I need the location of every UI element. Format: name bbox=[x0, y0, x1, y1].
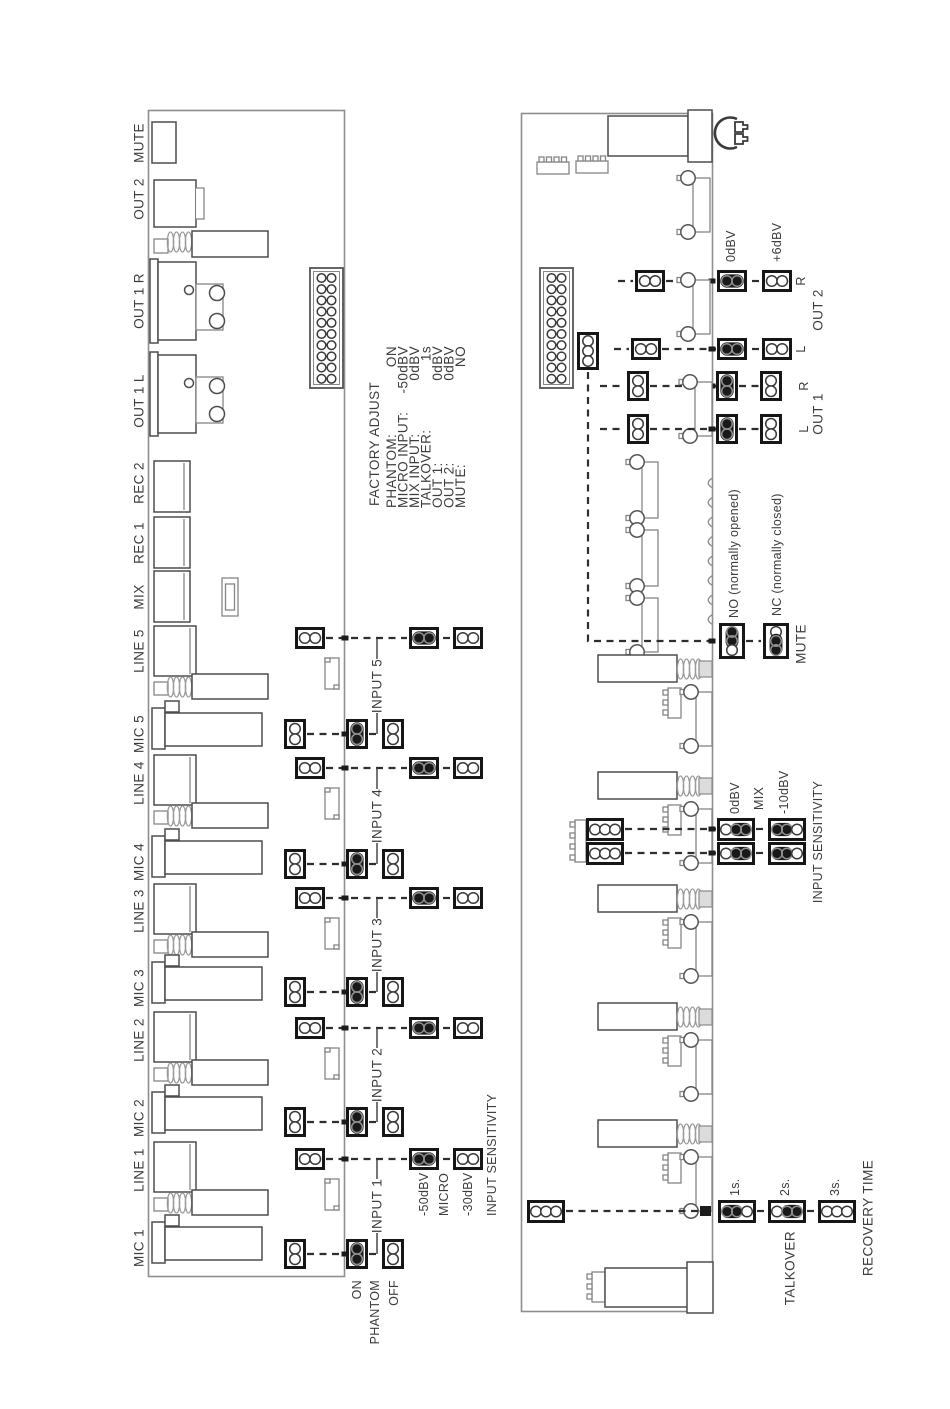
mute-no-jumper bbox=[721, 625, 744, 658]
talkover-2s-jumper bbox=[770, 1202, 805, 1222]
line3-onboard-jumper bbox=[297, 889, 324, 908]
factory-row-name: MUTE: bbox=[453, 464, 468, 508]
out1-label: OUT 1 bbox=[811, 393, 826, 435]
jumper-settings-diagram: MUTE OUT 2 OUT 1 R OUT 1 L REC 2 REC 1 M… bbox=[0, 0, 950, 1409]
mic2-phantom-off-jumper bbox=[384, 1109, 403, 1136]
line3-30dbv-jumper bbox=[455, 889, 482, 908]
mix-label: MIX bbox=[752, 787, 766, 810]
input-label: INPUT 4 bbox=[370, 789, 385, 843]
line5-30dbv-jumper bbox=[455, 629, 482, 648]
rec2-jack bbox=[154, 461, 190, 512]
mix-trimmer-part bbox=[222, 578, 238, 616]
connector-label: MUTE bbox=[132, 123, 147, 163]
talkover-label: TALKOVER bbox=[783, 1231, 798, 1305]
mix-10dbv-label: -10dBV bbox=[777, 770, 791, 814]
connector-label: MIC 2 bbox=[132, 1099, 147, 1137]
line2-onboard-jumper bbox=[297, 1019, 324, 1038]
out1-l-label: L bbox=[797, 425, 811, 432]
mix-0dbv-label: 0dBV bbox=[728, 782, 742, 814]
mic1-phantom-off-jumper bbox=[384, 1241, 403, 1268]
connector-label: LINE 5 bbox=[132, 629, 147, 673]
factory-adjust-title: FACTORY ADJUST bbox=[367, 382, 382, 506]
out1r-6dbv-jumper bbox=[762, 373, 781, 400]
headphones-icon bbox=[715, 118, 748, 149]
mic3-phantom-off-jumper bbox=[384, 979, 403, 1006]
connector-label: MIX bbox=[132, 584, 147, 609]
micro-label: MICRO bbox=[437, 1173, 451, 1216]
out2-label: OUT 2 bbox=[811, 289, 826, 331]
input-label: INPUT 3 bbox=[370, 918, 385, 972]
mix-r-10dbv-jumper bbox=[770, 844, 805, 864]
headphone-jack bbox=[608, 110, 712, 162]
out1r-0dbv-jumper bbox=[718, 373, 737, 400]
connector-label: MIC 3 bbox=[132, 969, 147, 1007]
mix-sensitivity-title: INPUT SENSITIVITY bbox=[811, 781, 825, 904]
factory-row-value: NO bbox=[453, 346, 468, 367]
line2-jack bbox=[154, 1012, 196, 1062]
micro-30dbv-label: -30dBV bbox=[461, 1172, 475, 1216]
mic4-phantom-on-jumper bbox=[348, 851, 367, 878]
connector-label: REC 1 bbox=[132, 522, 147, 564]
line4-jack bbox=[154, 755, 196, 805]
mute-connector bbox=[152, 122, 176, 163]
mic5-phantom-off-jumper bbox=[384, 721, 403, 748]
mix-l-10dbv-jumper bbox=[770, 820, 805, 840]
talkover-2s-label: 2s. bbox=[778, 1178, 792, 1196]
line4-50dbv-jumper bbox=[411, 759, 438, 778]
mute-nc-jumper bbox=[765, 625, 788, 658]
mix-r-0dbv-jumper bbox=[719, 844, 754, 864]
connector-label: MIC 4 bbox=[132, 843, 147, 881]
mute-no-label: NO (normally opened) bbox=[727, 489, 741, 618]
mic4-onboard-jumper bbox=[286, 851, 305, 878]
line4-onboard-jumper bbox=[297, 759, 324, 778]
main-board: MUTE OUT 2 OUT 1 R OUT 1 L REC 2 REC 1 M… bbox=[132, 111, 500, 1345]
mix-l-0dbv-jumper bbox=[719, 820, 754, 840]
out2l-onboard-jumper bbox=[633, 340, 660, 359]
out-0dbv-label: 0dBV bbox=[724, 230, 738, 262]
rec1-jack bbox=[154, 517, 190, 568]
line4-30dbv-jumper bbox=[455, 759, 482, 778]
connector-label: REC 2 bbox=[132, 462, 147, 504]
phantom-off-label: OFF bbox=[387, 1280, 401, 1306]
connector-label: MIC 5 bbox=[132, 715, 147, 753]
talkover-3s-label: 3s. bbox=[828, 1178, 842, 1196]
line5-50dbv-jumper bbox=[411, 629, 438, 648]
connector-label: LINE 4 bbox=[132, 761, 147, 805]
out1l-6dbv-jumper bbox=[762, 416, 781, 443]
talkover-onboard-jumper bbox=[529, 1202, 564, 1222]
mic4-phantom-off-jumper bbox=[384, 851, 403, 878]
out2-l-label: L bbox=[794, 345, 808, 352]
input-label: INPUT 2 bbox=[370, 1048, 385, 1102]
input-label: INPUT 5 bbox=[370, 659, 385, 713]
out1-r-label: R bbox=[797, 381, 811, 390]
jumper-settings-page: MUTE OUT 2 OUT 1 R OUT 1 L REC 2 REC 1 M… bbox=[0, 0, 950, 1409]
mic3-onboard-jumper bbox=[286, 979, 305, 1006]
line5-jack bbox=[154, 626, 196, 676]
mix-l-onboard-jumper bbox=[588, 820, 623, 840]
connector-label: OUT 1 L bbox=[132, 374, 147, 428]
mic1-phantom-on-jumper bbox=[348, 1241, 367, 1268]
phantom-on-label: ON bbox=[350, 1280, 364, 1299]
mic5-phantom-on-jumper bbox=[348, 721, 367, 748]
out2-r-label: R bbox=[794, 276, 808, 285]
micro-50dbv-label: -50dBV bbox=[417, 1172, 431, 1216]
line1-jack bbox=[154, 1142, 196, 1192]
out1l-0dbv-jumper bbox=[718, 416, 737, 443]
out2r-6dbv-jumper bbox=[764, 272, 791, 291]
input-label: INPUT 1 bbox=[370, 1179, 385, 1233]
out-6dbv-label: +6dBV bbox=[770, 222, 784, 262]
mic2-onboard-jumper bbox=[286, 1109, 305, 1136]
out1l-onboard-jumper bbox=[629, 416, 648, 443]
out2l-0dbv-jumper bbox=[719, 340, 746, 359]
line2-50dbv-jumper bbox=[411, 1019, 438, 1038]
line3-50dbv-jumper bbox=[411, 889, 438, 908]
second-board: 0dBV +6dBV R L OUT 2 R L OUT 1 NO (norma… bbox=[522, 110, 876, 1313]
ribbon-connector bbox=[310, 268, 343, 388]
mute-onboard-connector bbox=[579, 334, 598, 369]
talkover-1s-jumper bbox=[720, 1202, 755, 1222]
mute-label: MUTE bbox=[794, 624, 809, 664]
out1r-onboard-jumper bbox=[629, 373, 648, 400]
line1-onboard-jumper bbox=[297, 1150, 324, 1169]
mic2-phantom-on-jumper bbox=[348, 1109, 367, 1136]
mic3-phantom-on-jumper bbox=[348, 979, 367, 1006]
out2l-6dbv-jumper bbox=[764, 340, 791, 359]
ribbon-connector bbox=[540, 268, 573, 388]
connector-label: MIC 1 bbox=[132, 1229, 147, 1267]
line1-50dbv-jumper bbox=[411, 1150, 438, 1169]
mute-nc-label: NC (normally closed) bbox=[770, 493, 784, 616]
connector-label: OUT 2 bbox=[132, 178, 147, 220]
bottom-jack bbox=[587, 1262, 713, 1313]
factory-adjust-table: FACTORY ADJUST PHANTOM:ON MICRO INPUT:-5… bbox=[367, 346, 468, 508]
connector-label: LINE 3 bbox=[132, 889, 147, 933]
line3-jack bbox=[154, 884, 196, 934]
mic5-onboard-jumper bbox=[286, 721, 305, 748]
phantom-label: PHANTOM bbox=[368, 1280, 382, 1344]
out2r-0dbv-jumper bbox=[719, 272, 746, 291]
talkover-1s-label: 1s. bbox=[728, 1178, 742, 1196]
mic1-onboard-jumper bbox=[286, 1241, 305, 1268]
mix-r-onboard-jumper bbox=[588, 844, 623, 864]
connector-label: OUT 1 R bbox=[132, 273, 147, 329]
input-sensitivity-title: INPUT SENSITIVITY bbox=[485, 1093, 499, 1216]
out2r-onboard-jumper bbox=[637, 272, 664, 291]
mix-jack bbox=[154, 571, 190, 622]
recovery-time-label: RECOVERY TIME bbox=[861, 1160, 876, 1276]
line2-30dbv-jumper bbox=[455, 1019, 482, 1038]
connector-label: LINE 1 bbox=[132, 1148, 147, 1192]
line5-onboard-jumper bbox=[297, 629, 324, 648]
connector-label: LINE 2 bbox=[132, 1018, 147, 1062]
line1-30dbv-jumper bbox=[455, 1150, 482, 1169]
talkover-3s-jumper bbox=[820, 1202, 855, 1222]
out2-jack bbox=[154, 180, 204, 227]
